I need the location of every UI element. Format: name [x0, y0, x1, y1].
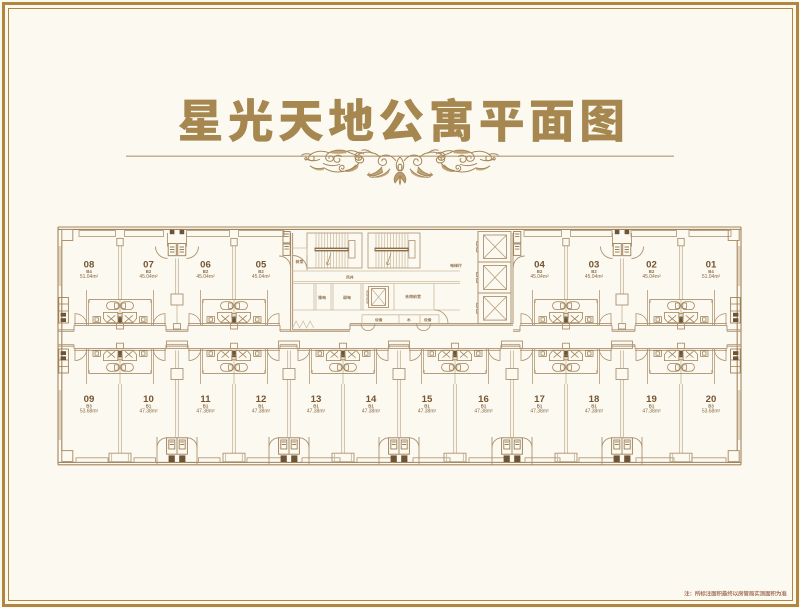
svg-text:45.04m²: 45.04m² [585, 274, 604, 280]
svg-text:47.38m²: 47.38m² [307, 409, 326, 415]
svg-text:45.04m²: 45.04m² [139, 274, 158, 280]
svg-text:47.38m²: 47.38m² [252, 409, 271, 415]
svg-text:47.38m²: 47.38m² [139, 409, 158, 415]
svg-text:53.68m²: 53.68m² [702, 409, 721, 415]
svg-text:45.04m²: 45.04m² [196, 274, 215, 280]
svg-text:53.68m²: 53.68m² [80, 409, 99, 415]
svg-text:51.04m²: 51.04m² [702, 274, 721, 280]
svg-text:45.04m²: 45.04m² [642, 274, 661, 280]
svg-text:45.04m²: 45.04m² [530, 274, 549, 280]
svg-text:45.04m²: 45.04m² [252, 274, 271, 280]
svg-text:47.38m²: 47.38m² [418, 409, 437, 415]
svg-text:47.38m²: 47.38m² [474, 409, 493, 415]
svg-text:47.38m²: 47.38m² [362, 409, 381, 415]
svg-text:51.04m²: 51.04m² [80, 274, 99, 280]
svg-text:47.38m²: 47.38m² [585, 409, 604, 415]
svg-text:47.38m²: 47.38m² [530, 409, 549, 415]
svg-text:47.38m²: 47.38m² [196, 409, 215, 415]
svg-text:47.38m²: 47.38m² [642, 409, 661, 415]
